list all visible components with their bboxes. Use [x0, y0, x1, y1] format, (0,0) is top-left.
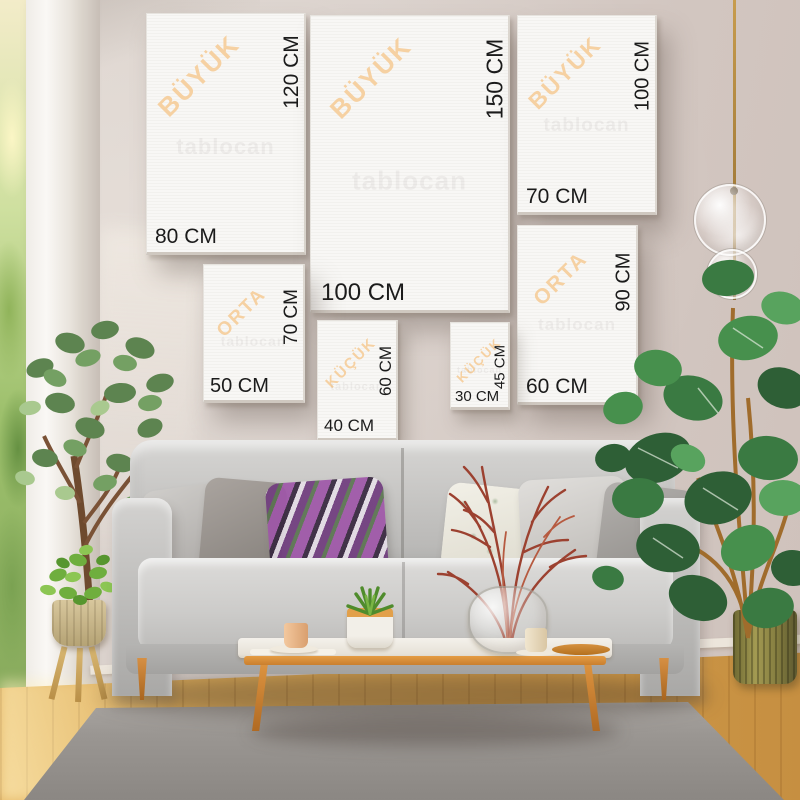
width-dimension-label: 60 CM	[526, 375, 588, 399]
brand-watermark: tablocan	[221, 333, 287, 349]
size-category-label: BÜYÜK	[324, 31, 418, 125]
canvas-panel-80x120: BÜYÜK 120 CM 80 CM tablocan	[146, 13, 306, 255]
height-dimension-label: 120 CM	[280, 35, 304, 109]
canvas-panel-70x100: BÜYÜK 100 CM 70 CM tablocan	[517, 15, 657, 215]
width-dimension-label: 30 CM	[455, 388, 499, 405]
width-dimension-label: 40 CM	[324, 416, 374, 436]
coffee-table-wood-rim	[244, 656, 606, 665]
pendant-lamp-globe-large	[694, 184, 766, 256]
width-dimension-label: 50 CM	[210, 375, 269, 398]
succulent-plant	[340, 582, 400, 618]
size-guide-image: BÜYÜK 120 CM 80 CM tablocan BÜYÜK 150 CM…	[0, 0, 800, 800]
canvas-panel-30x45: KÜÇÜK 45 CM 30 CM tablocan	[450, 322, 510, 410]
width-dimension-label: 100 CM	[321, 279, 405, 307]
canvas-panel-100x150: BÜYÜK 150 CM 100 CM tablocan	[310, 15, 510, 313]
size-category-label: ORTA	[529, 247, 593, 311]
canvas-panel-40x60: KÜÇÜK 60 CM 40 CM tablocan	[317, 320, 398, 441]
sofa-seat-seam	[402, 562, 405, 642]
brand-watermark: tablocan	[176, 134, 274, 160]
coffee-cup-peach	[284, 623, 308, 648]
brand-watermark: tablocan	[543, 115, 629, 137]
canvas-panel-50x70: ORTA 70 CM 50 CM tablocan	[203, 264, 305, 403]
brand-watermark: tablocan	[330, 381, 383, 393]
width-dimension-label: 70 CM	[526, 185, 588, 209]
height-dimension-label: 100 CM	[632, 41, 655, 111]
size-category-label: BÜYÜK	[152, 29, 246, 123]
brand-watermark: tablocan	[352, 165, 467, 196]
size-category-label: BÜYÜK	[523, 31, 607, 115]
height-dimension-label: 150 CM	[482, 39, 509, 120]
sofa-backrest-seam	[401, 448, 404, 568]
width-dimension-label: 80 CM	[155, 225, 217, 249]
monstera-plant	[598, 248, 800, 688]
brand-watermark: tablocan	[457, 365, 502, 375]
coffee-cup-cream	[525, 628, 547, 652]
table-shadow	[250, 716, 620, 746]
